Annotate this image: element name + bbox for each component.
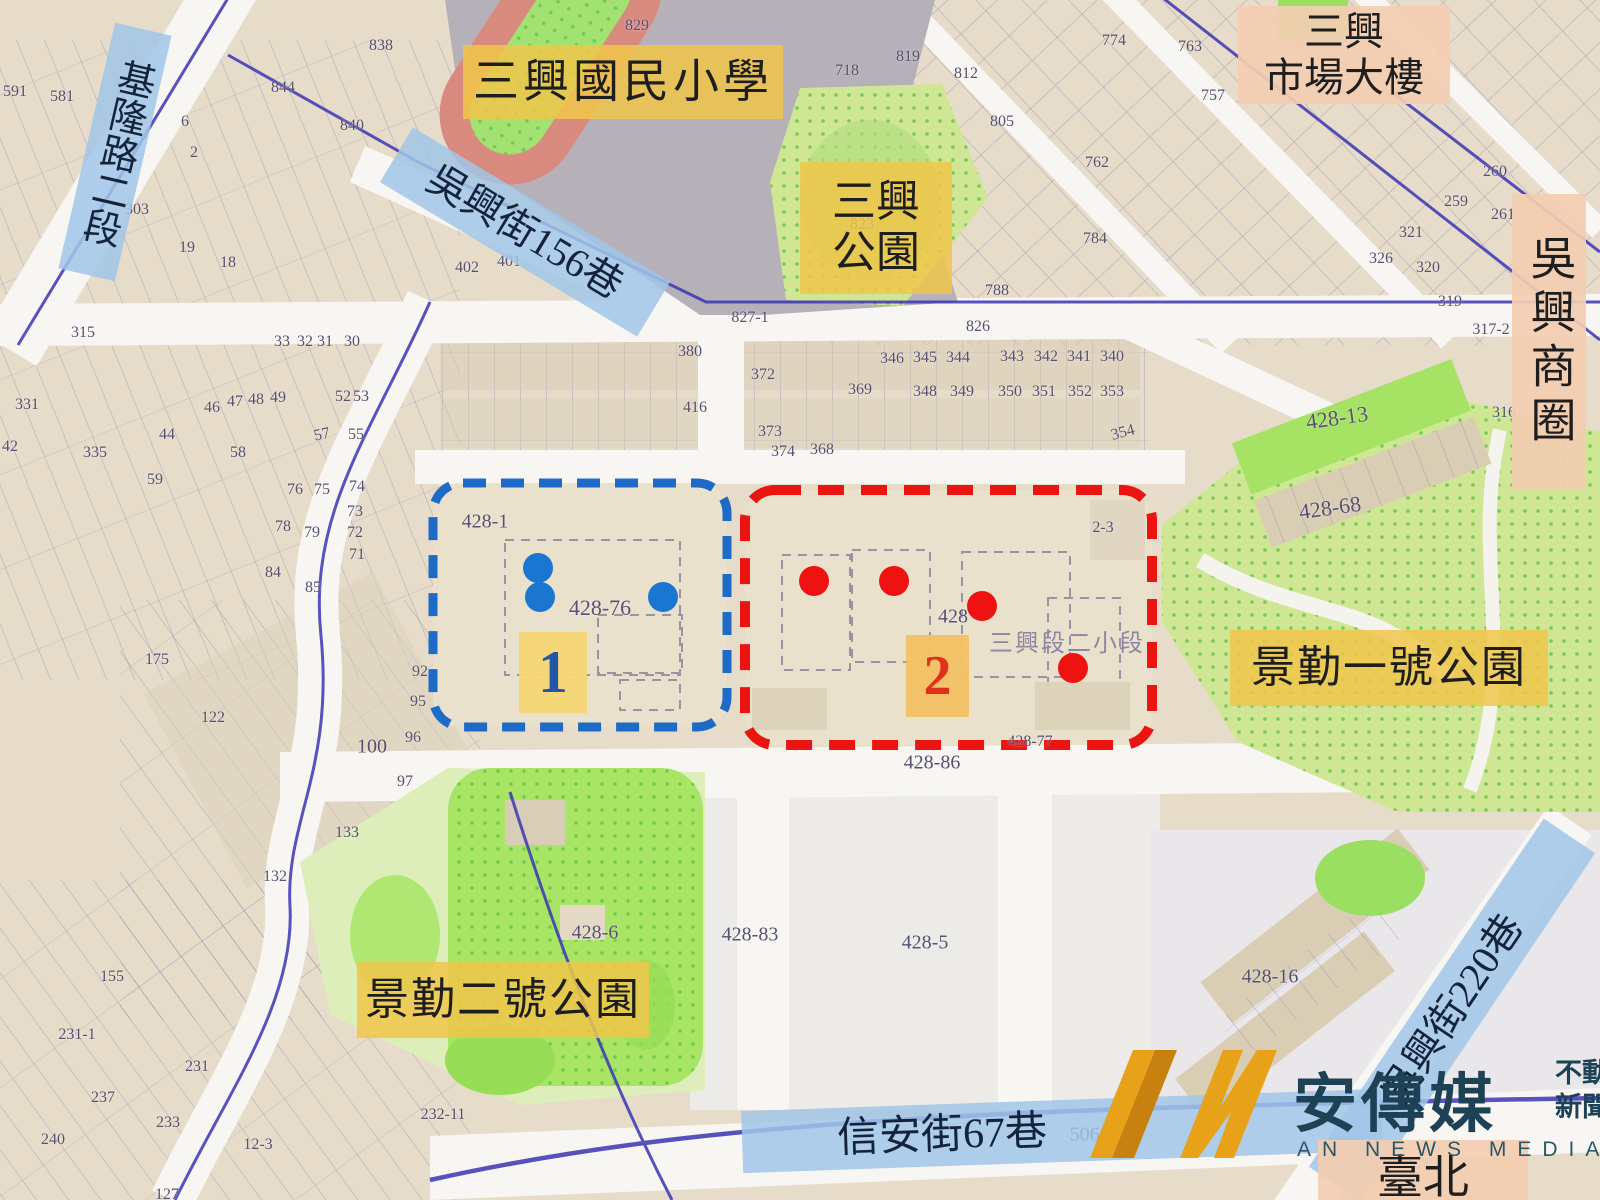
news-watermark: 安傳媒 不動產 新聞網 AN NEWS MEDIA — [1085, 1035, 1600, 1200]
label-wuxing-shopping-district: 吳興商圈 — [1512, 194, 1586, 490]
watermark-english-name: AN NEWS MEDIA — [1297, 1138, 1600, 1162]
label-jingqin-no1-park: 景勤一號公園 — [1230, 630, 1548, 706]
label-cadastral-district: 三興段二小段 — [962, 628, 1172, 662]
watermark-tagline-line1: 不動產 — [1555, 1057, 1600, 1091]
label-market-line1: 三興 — [1304, 9, 1384, 55]
site2-number-badge: 2 — [906, 635, 969, 717]
watermark-brand-name: 安傳媒 — [1293, 1053, 1497, 1145]
label-jingqin-no2-park: 景勤二號公園 — [357, 962, 649, 1038]
label-sanxing-market-building: 三興 市場大樓 — [1238, 6, 1450, 104]
watermark-tagline-line2: 新聞網 — [1555, 1091, 1600, 1125]
site1-number-badge: 1 — [519, 632, 587, 713]
label-sanxing-park-line2: 公園 — [832, 228, 920, 279]
label-sanxing-elementary-school: 三興國民小學 — [463, 45, 783, 119]
watermark-tagline: 不動產 新聞網 — [1555, 1057, 1600, 1125]
label-market-line2: 市場大樓 — [1264, 55, 1424, 101]
cadastral-map: 5915818388448408297188198127747637578057… — [0, 0, 1600, 1200]
an-news-logo-icon — [1085, 1040, 1280, 1165]
label-sanxing-park: 三興 公園 — [800, 162, 952, 294]
label-sanxing-park-line1: 三興 — [832, 177, 920, 228]
